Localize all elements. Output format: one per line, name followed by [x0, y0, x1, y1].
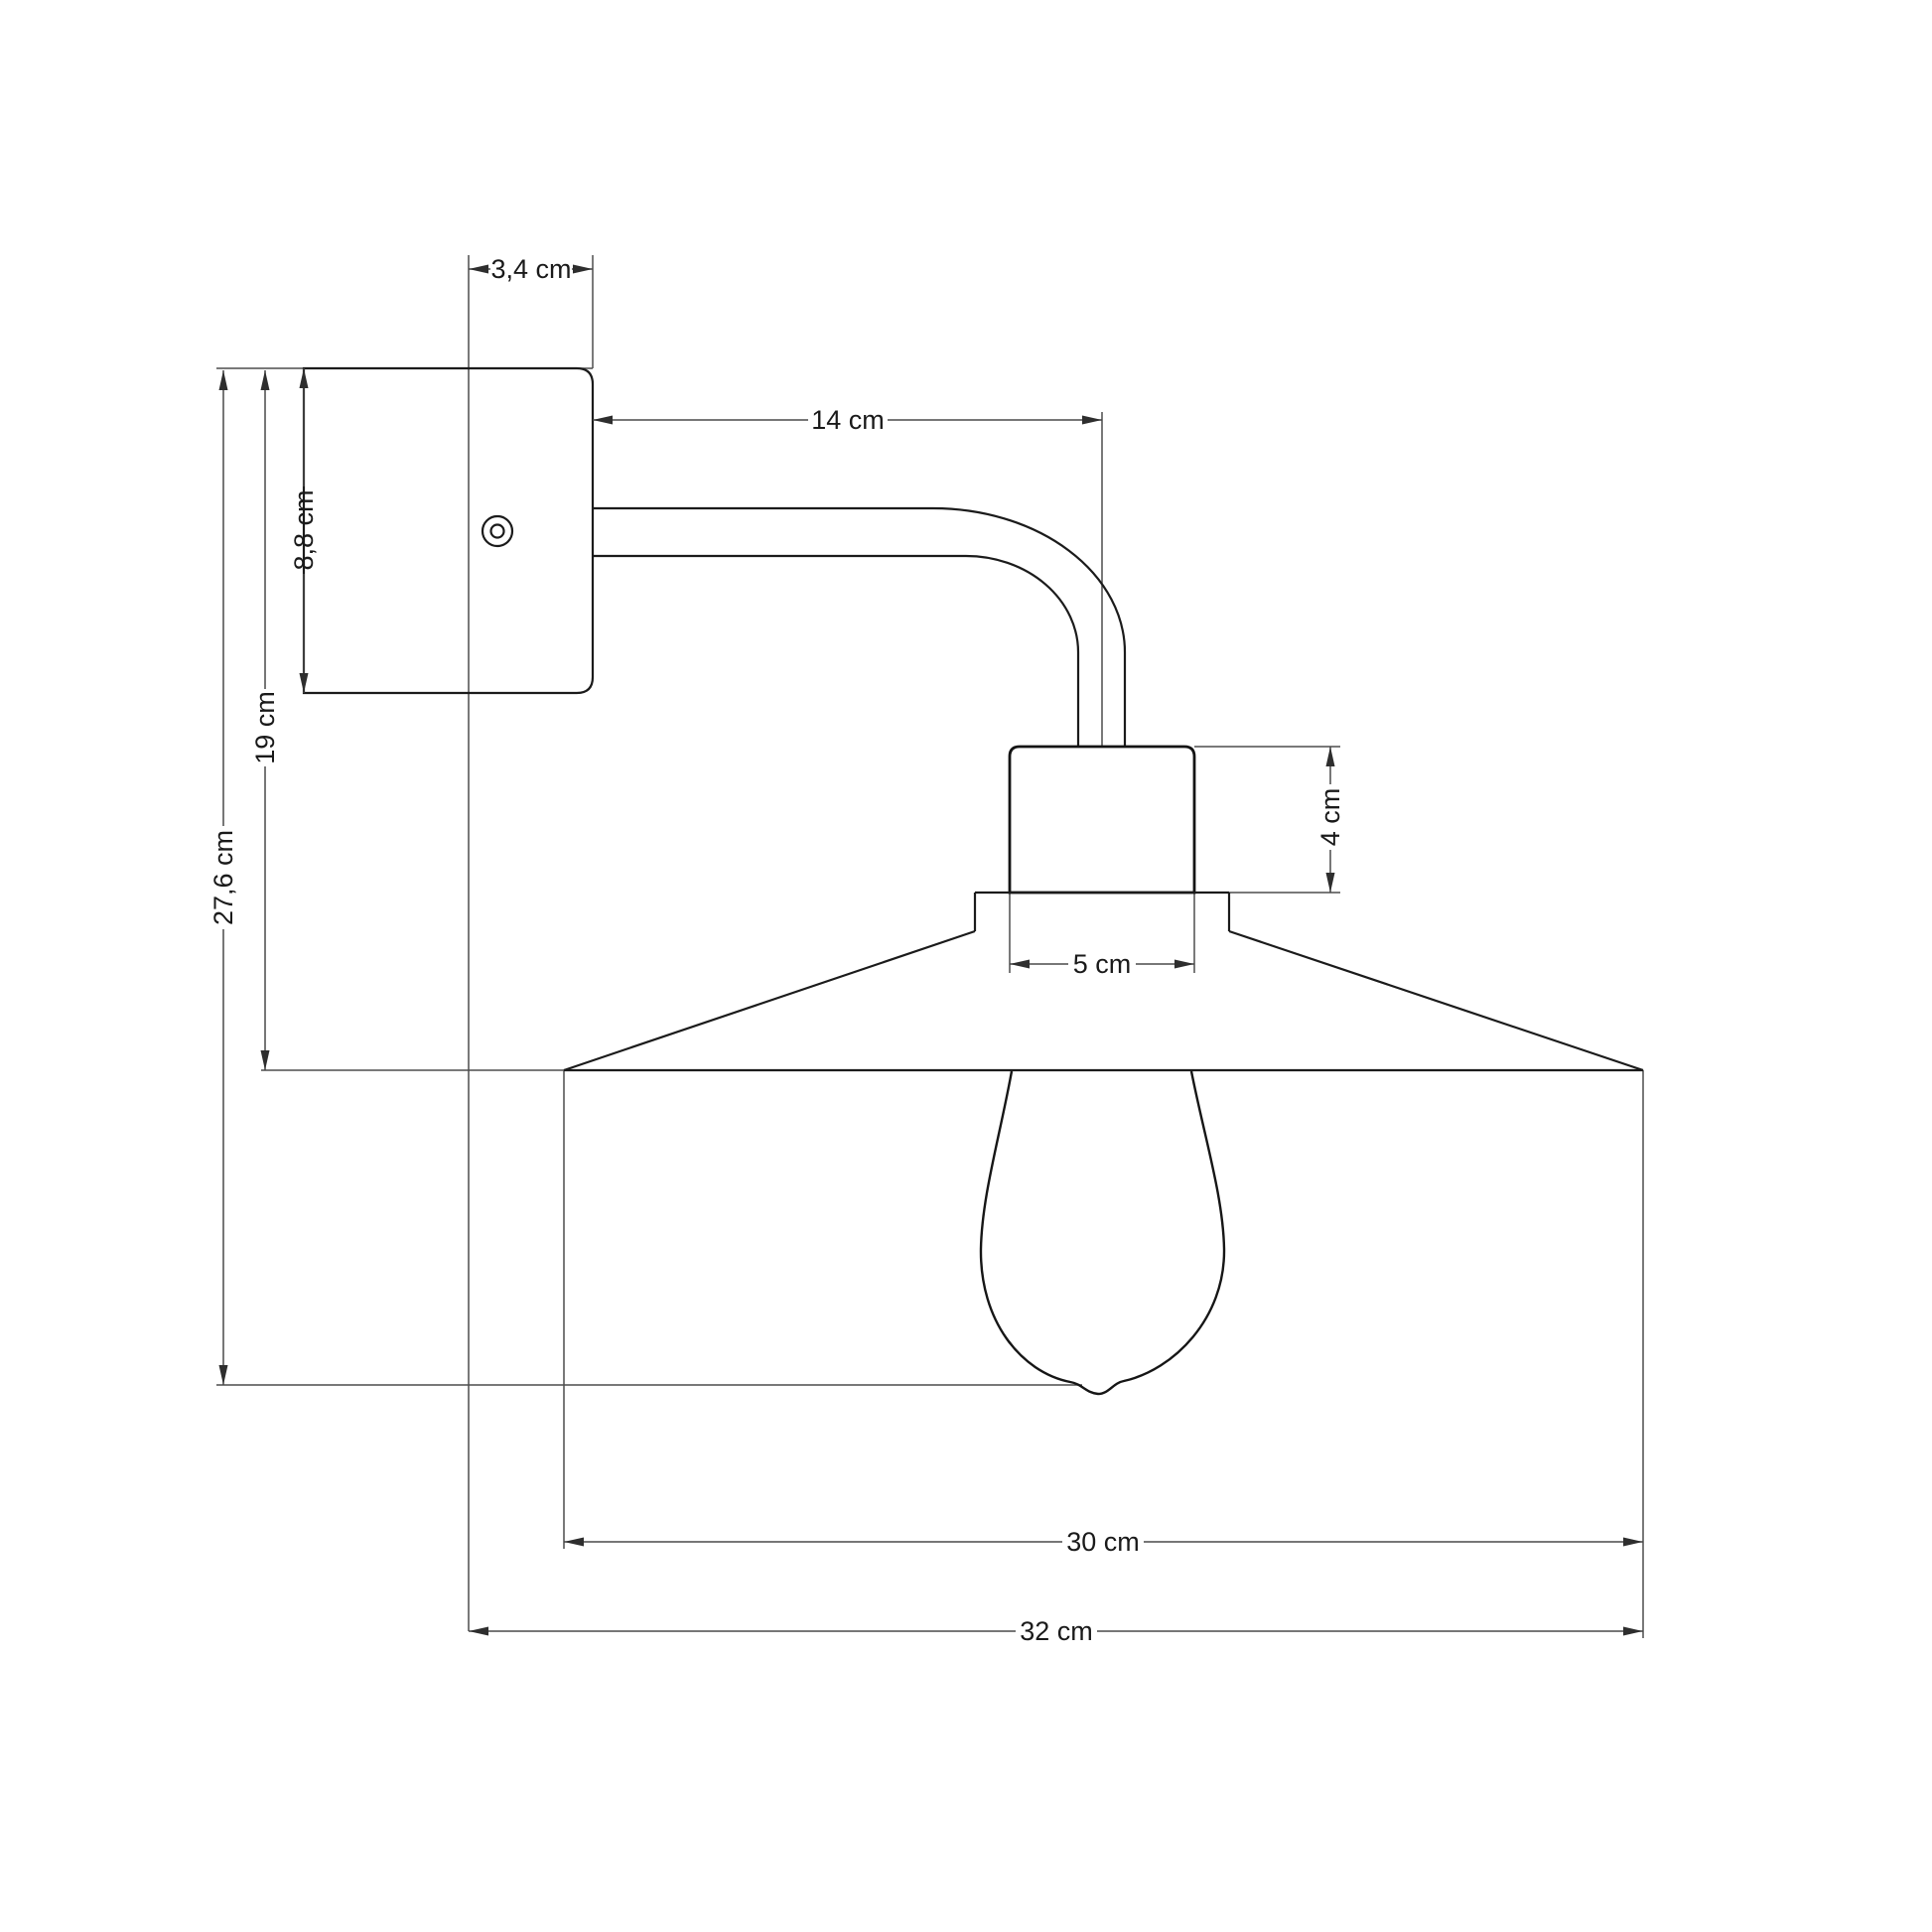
dimension-plate-projection: 3,4 cm [469, 254, 593, 284]
arrow-left-icon [469, 265, 488, 274]
dimension-top-to-shade: 19 cm [250, 370, 280, 1070]
dimension-label: 32 cm [1020, 1616, 1093, 1646]
arrow-right-icon [1623, 1627, 1643, 1636]
arrow-down-icon [1326, 873, 1335, 893]
dimension-socket-height: 4 cm [1315, 747, 1345, 893]
arrow-down-icon [300, 673, 309, 693]
arrow-down-icon [261, 1050, 270, 1070]
arrow-left-icon [469, 1627, 488, 1636]
arrow-right-icon [1174, 960, 1194, 969]
dimension-plate-height: 8,8 cm [289, 368, 319, 693]
dimension-label: 8,8 cm [289, 489, 319, 570]
arrow-left-icon [593, 416, 613, 425]
dimension-label: 27,6 cm [208, 830, 238, 925]
light-bulb [981, 1071, 1224, 1394]
arrow-right-icon [1082, 416, 1102, 425]
screw-hole-inner [491, 525, 504, 538]
dimension-shade-diameter: 30 cm [564, 1527, 1643, 1557]
dimension-label: 4 cm [1315, 788, 1345, 847]
wall-lamp-dimension-diagram: 3,4 cm 14 cm 8,8 cm 19 cm [0, 0, 1932, 1932]
dimension-socket-width: 5 cm [1010, 949, 1194, 979]
arrow-right-icon [573, 265, 593, 274]
arrow-up-icon [1326, 747, 1335, 766]
arm-outer-edge [593, 508, 1125, 747]
dimension-total-height: 27,6 cm [208, 370, 238, 1385]
arm-inner-edge [593, 556, 1078, 747]
dimension-label: 5 cm [1073, 949, 1132, 979]
dimension-label: 30 cm [1066, 1527, 1140, 1557]
arrow-up-icon [219, 370, 228, 390]
dimension-label: 19 cm [250, 691, 280, 764]
dimension-label: 14 cm [811, 405, 885, 435]
dimension-label: 3,4 cm [490, 254, 571, 284]
shade-cone-right [1229, 931, 1643, 1070]
dimension-total-projection: 32 cm [469, 1616, 1643, 1646]
shade-cone-left [564, 931, 975, 1070]
arrow-left-icon [564, 1538, 584, 1547]
arrow-up-icon [300, 368, 309, 388]
arrow-up-icon [261, 370, 270, 390]
lamp-socket [1010, 747, 1194, 893]
arrow-right-icon [1623, 1538, 1643, 1547]
arrow-left-icon [1010, 960, 1030, 969]
technical-drawing: 3,4 cm 14 cm 8,8 cm 19 cm [0, 0, 1932, 1932]
dimension-arm-reach: 14 cm [593, 405, 1102, 435]
dimension-lines: 3,4 cm 14 cm 8,8 cm 19 cm [208, 254, 1643, 1646]
arrow-down-icon [219, 1365, 228, 1385]
lamp-outline [304, 368, 1643, 1394]
screw-hole-outer [483, 516, 512, 546]
mounting-plate [304, 368, 593, 693]
